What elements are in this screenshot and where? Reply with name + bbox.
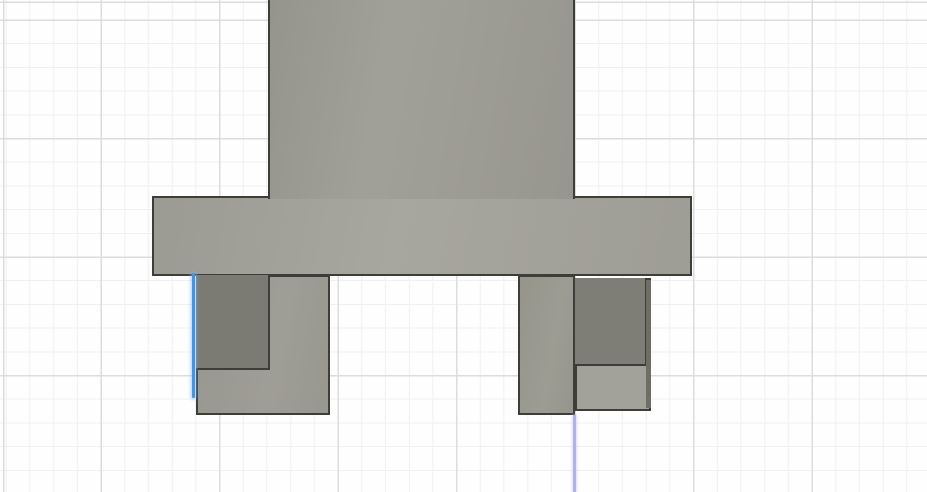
right-leg-side-face[interactable] [646,280,651,408]
left-leg-recess-face[interactable] [196,275,270,370]
right-leg-column-face[interactable] [518,275,575,415]
flange-face[interactable] [152,196,692,276]
selected-edge-highlight[interactable] [192,273,195,398]
cad-viewport[interactable] [0,0,927,492]
sketch-line[interactable] [573,415,576,492]
body-face[interactable] [268,0,575,199]
right-leg-recess-face[interactable] [575,278,647,366]
